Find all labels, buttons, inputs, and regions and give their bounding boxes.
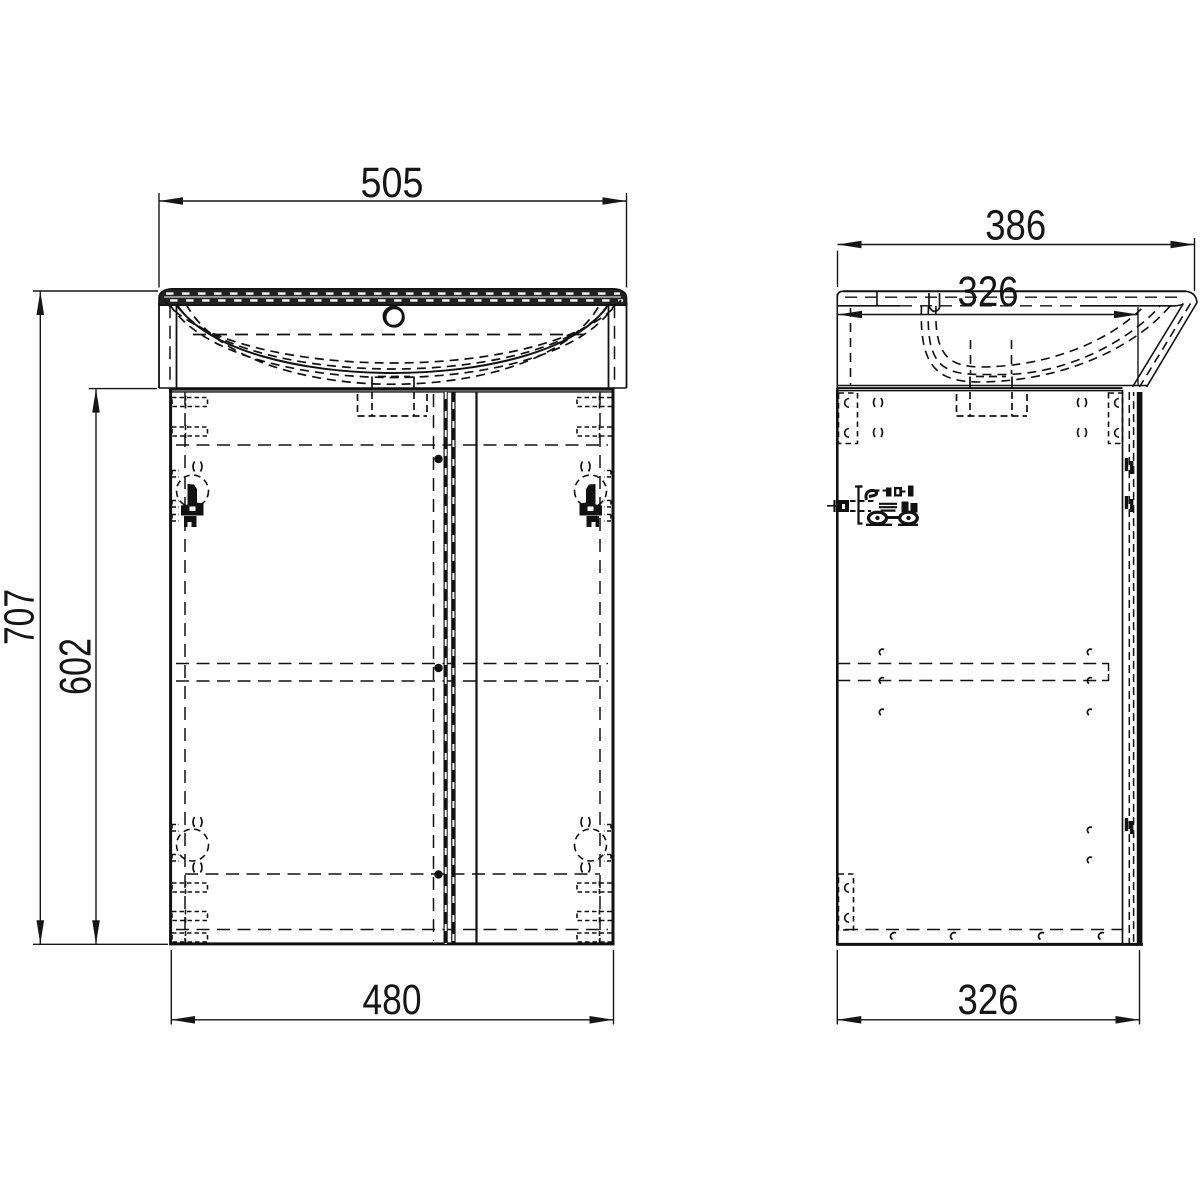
svg-text:480: 480 (363, 976, 422, 1024)
svg-text:386: 386 (985, 202, 1046, 250)
svg-text:602: 602 (52, 638, 101, 695)
svg-text:707: 707 (0, 589, 44, 645)
svg-text:505: 505 (361, 159, 424, 207)
svg-text:326: 326 (958, 976, 1019, 1024)
